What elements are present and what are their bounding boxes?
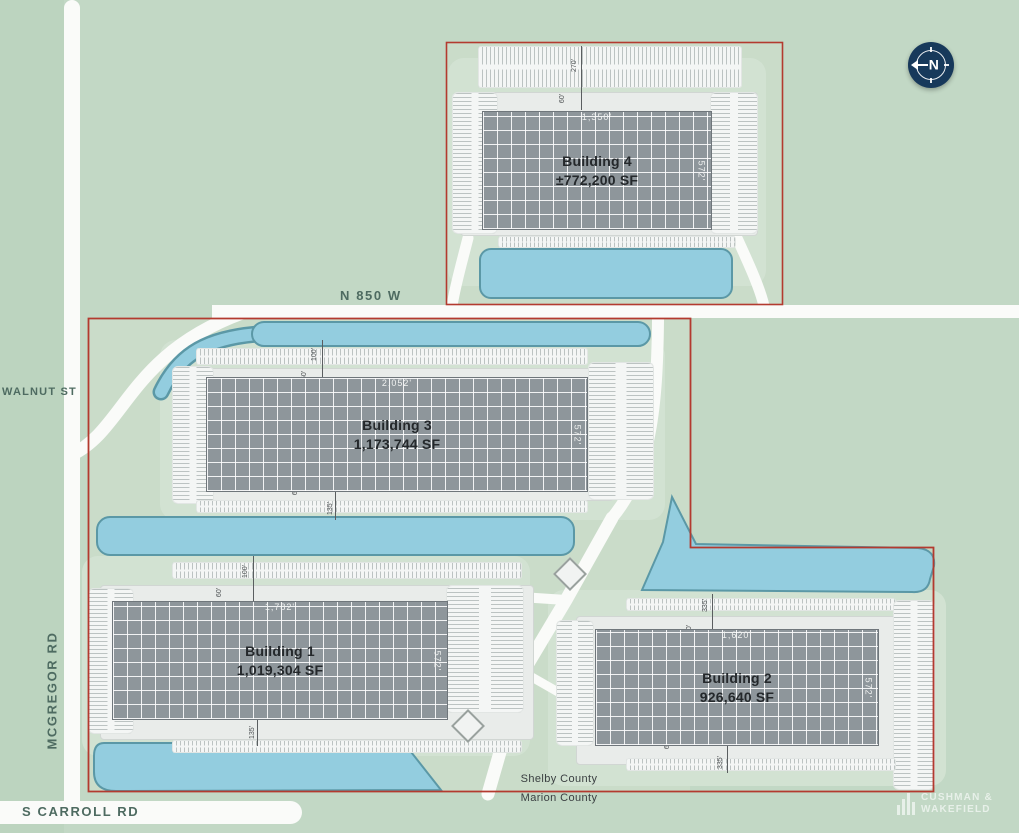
compass-tick-top (930, 47, 932, 52)
logo-building-icon (897, 793, 915, 815)
cushman-wakefield-logo: CUSHMAN & WAKEFIELD (897, 792, 993, 815)
parcel-boundary-layer (0, 0, 1019, 833)
compass-tick-right (944, 64, 949, 66)
compass-tick-bottom (930, 78, 932, 83)
compass-north-label: N (929, 57, 939, 73)
logo-line2: WAKEFIELD (921, 804, 993, 816)
parcel-boundary-building4 (447, 43, 783, 305)
north-compass: N (908, 42, 954, 88)
logo-line1: CUSHMAN & (921, 792, 993, 804)
compass-arrow-icon (911, 60, 918, 70)
parcel-boundary-main (89, 319, 934, 792)
site-plan-map: 270' 60' 1,350' 572' Building 4 ±772,200… (0, 0, 1019, 833)
logo-wordmark: CUSHMAN & WAKEFIELD (921, 792, 993, 815)
